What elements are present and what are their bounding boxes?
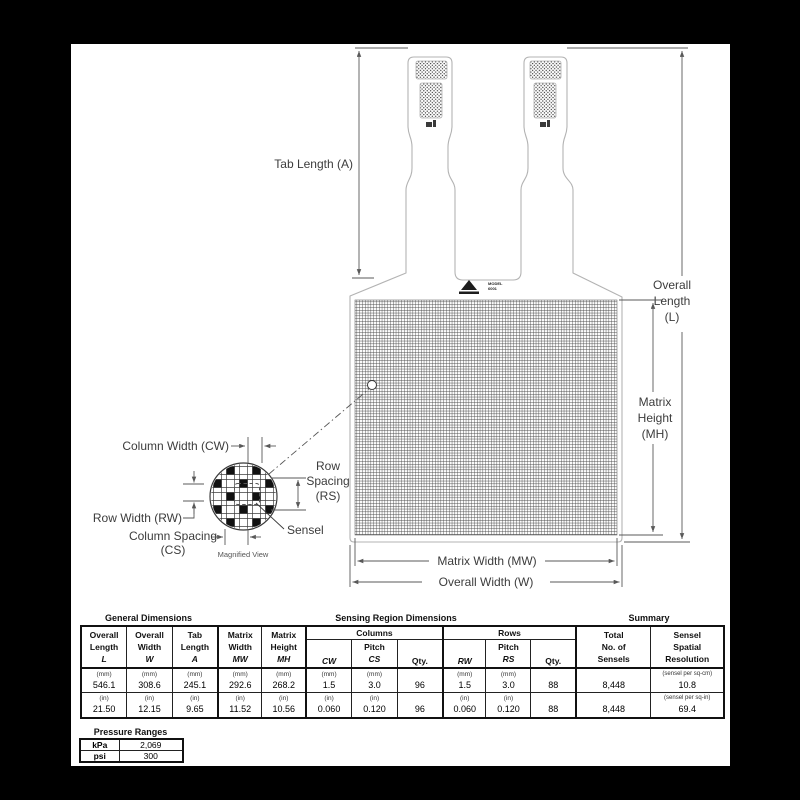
column-spacing-label-line2: (CS) <box>161 543 186 557</box>
right-tab-pad-lower <box>534 83 556 118</box>
header-matrix-height: Matrix Height MH <box>262 626 306 668</box>
header-rw: RW <box>443 639 486 668</box>
metric-row: (mm)546.1 (mm)308.6 (mm)245.1 (mm)292.6 … <box>81 668 724 693</box>
general-dimensions-title: General Dimensions <box>80 612 217 625</box>
header-matrix-width: Matrix Width MW <box>218 626 262 668</box>
header-overall-length: Overall Length L <box>81 626 127 668</box>
dimensions-table: Overall Length L Overall Width W Tab Len… <box>80 625 725 719</box>
header-columns-group: Columns <box>306 626 443 639</box>
pressure-ranges-table: kPa 2,069 psi 300 <box>79 738 184 763</box>
pressure-row-psi: psi 300 <box>80 751 183 763</box>
tab-length-label: Tab Length (A) <box>274 157 353 171</box>
header-cw: CW <box>306 639 352 668</box>
drawing-sheet: MODEL 6001 <box>71 44 730 766</box>
matrix-height-label-line3: (MH) <box>642 427 669 441</box>
overall-length-label-line1: Overall <box>653 278 691 292</box>
header-pitch-cs: PitchCS <box>352 639 398 668</box>
psi-label: psi <box>80 751 119 763</box>
pressure-ranges-block: Pressure Ranges kPa 2,069 psi 300 <box>79 727 182 763</box>
sensing-matrix <box>355 300 617 535</box>
magnified-view-label: Magnified View <box>218 550 269 559</box>
header-qty-columns: Qty. <box>397 639 443 668</box>
header-pitch-rs: PitchRS <box>486 639 531 668</box>
imperial-row: (in)21.50 (in)12.15 (in)9.65 (in)11.52 (… <box>81 693 724 718</box>
header-qty-rows: Qty. <box>531 639 576 668</box>
sensor-diagram: MODEL 6001 <box>71 44 730 604</box>
column-spacing-label-line1: Column Spacing <box>129 529 217 543</box>
row-width-label: Row Width (RW) <box>93 511 182 525</box>
header-total-sensels: Total No. of Sensels <box>576 626 651 668</box>
column-width-label: Column Width (CW) <box>122 439 229 453</box>
row-spacing-label-line3: (RS) <box>316 489 341 503</box>
left-tab-pad-upper <box>416 61 447 79</box>
overall-width-label: Overall Width (W) <box>439 575 534 589</box>
row-spacing-label-line1: Row <box>316 459 340 473</box>
page-background: MODEL 6001 <box>0 0 800 800</box>
matrix-width-label: Matrix Width (MW) <box>437 554 536 568</box>
overall-length-label-line3: (L) <box>665 310 680 324</box>
matrix-height-label-line1: Matrix <box>639 395 672 409</box>
kpa-value: 2,069 <box>119 739 183 751</box>
header-tab-length: Tab Length A <box>172 626 218 668</box>
header-rows-group: Rows <box>443 626 576 639</box>
psi-value: 300 <box>119 751 183 763</box>
table-section-titles: General Dimensions Sensing Region Dimens… <box>80 612 723 625</box>
matrix-height-label-line2: Height <box>638 411 673 425</box>
header-resolution: Sensel Spatial Resolution <box>651 626 724 668</box>
row-spacing-label-line2: Spacing <box>306 474 349 488</box>
sensel-label: Sensel <box>287 523 324 537</box>
kpa-label: kPa <box>80 739 119 751</box>
matrix-callout-circle <box>368 381 377 390</box>
left-tab-pad-lower <box>420 83 442 118</box>
overall-length-label-line2: Length <box>654 294 691 308</box>
dimensions-table-block: General Dimensions Sensing Region Dimens… <box>80 612 723 719</box>
header-overall-width: Overall Width W <box>127 626 173 668</box>
model-label-line2: 6001 <box>488 286 498 291</box>
pressure-row-kpa: kPa 2,069 <box>80 739 183 751</box>
right-tab-pad-upper <box>530 61 561 79</box>
pressure-ranges-title: Pressure Ranges <box>79 727 182 738</box>
summary-title: Summary <box>575 612 723 625</box>
sensing-region-title: Sensing Region Dimensions <box>217 612 575 625</box>
